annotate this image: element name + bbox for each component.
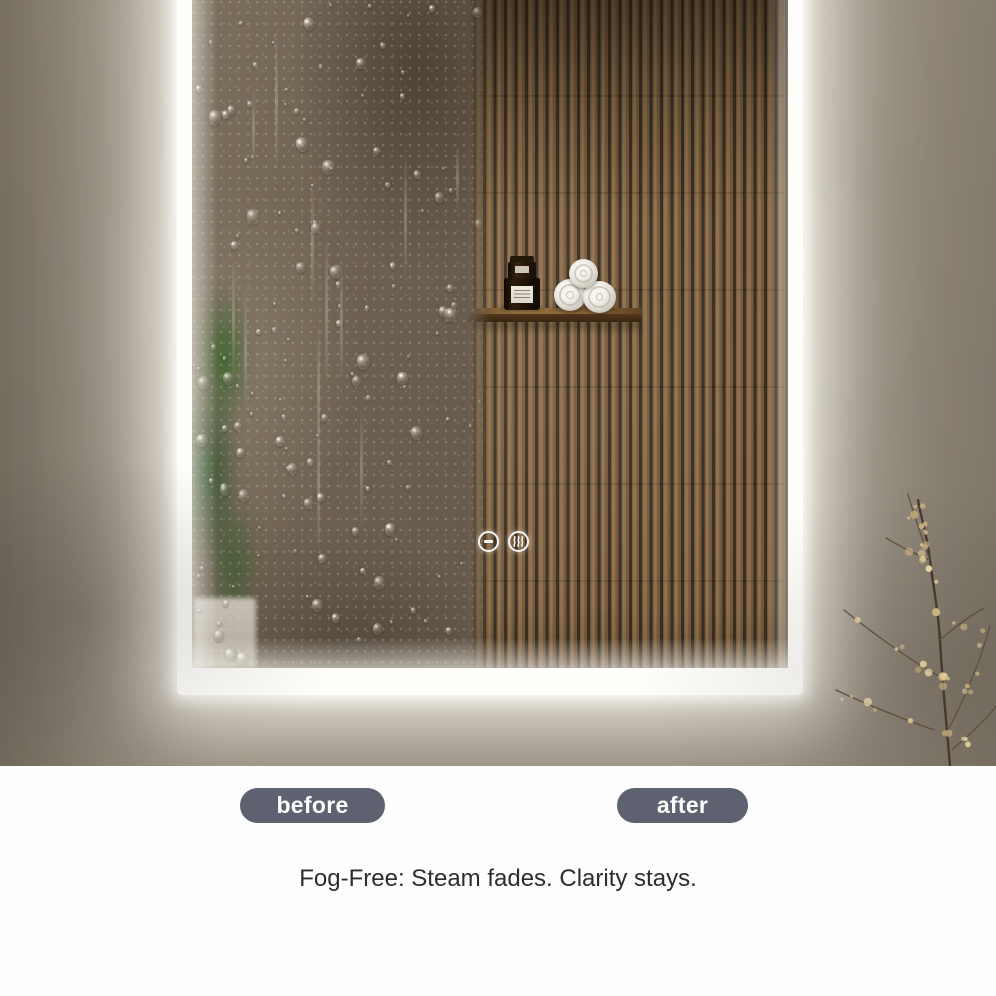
water-droplet xyxy=(228,105,237,116)
water-droplet xyxy=(295,136,310,153)
branch-berry xyxy=(914,505,917,508)
branch-berry xyxy=(926,565,933,572)
water-droplet xyxy=(373,147,381,157)
branch-berry xyxy=(908,718,913,723)
steam-icon xyxy=(512,535,525,548)
branch-berry xyxy=(920,661,927,668)
branch-berry xyxy=(905,548,913,556)
water-droplet xyxy=(307,458,314,467)
water-droplet xyxy=(195,85,202,93)
water-droplet xyxy=(410,425,424,441)
branch-berry xyxy=(977,643,982,648)
branch-berry xyxy=(932,608,940,616)
branch-berry xyxy=(907,517,910,520)
water-trail xyxy=(456,142,459,211)
water-droplet xyxy=(366,486,370,492)
water-trail xyxy=(244,287,247,412)
water-droplet xyxy=(283,359,286,363)
water-trail xyxy=(325,230,328,390)
water-droplet xyxy=(352,527,359,536)
branch-berry xyxy=(961,624,968,631)
water-trail xyxy=(317,405,320,560)
water-droplet xyxy=(273,302,277,306)
water-droplet xyxy=(250,155,253,159)
candle-upper-label xyxy=(515,266,529,273)
water-droplet xyxy=(446,627,452,635)
candle-label xyxy=(511,286,533,303)
caption-text: Fog-Free: Steam fades. Clarity stays. xyxy=(0,865,996,893)
dried-branch-decor xyxy=(818,468,996,766)
water-droplet xyxy=(329,3,333,8)
dimmer-button xyxy=(478,531,499,552)
branch-berry xyxy=(952,621,955,624)
water-droplet xyxy=(405,485,410,491)
branch-berry xyxy=(934,580,938,584)
branch-berry xyxy=(962,689,968,695)
water-droplet xyxy=(311,599,322,613)
defog-button xyxy=(508,531,529,552)
water-droplet xyxy=(420,208,423,212)
water-droplet xyxy=(434,192,444,204)
water-droplet xyxy=(356,354,371,371)
water-droplet xyxy=(395,538,398,541)
water-droplet xyxy=(449,188,453,193)
rolled-towel xyxy=(569,259,598,288)
water-droplet xyxy=(380,41,387,48)
branch-berry xyxy=(968,689,973,694)
bathroom-scene xyxy=(0,0,996,766)
branch-berry xyxy=(923,529,926,532)
water-droplet xyxy=(356,58,366,69)
water-droplet xyxy=(318,554,327,563)
branch-berry xyxy=(855,617,861,623)
branch-berry xyxy=(925,669,933,677)
water-droplet xyxy=(284,88,287,91)
led-mirror-frame xyxy=(177,0,803,695)
shelf-shadow xyxy=(468,322,642,334)
water-droplet xyxy=(447,284,456,293)
water-droplet xyxy=(446,416,450,420)
water-droplet xyxy=(410,607,416,615)
water-droplet xyxy=(390,261,397,270)
water-trail xyxy=(252,86,255,172)
dimmer-icon xyxy=(484,540,493,543)
water-trail xyxy=(232,255,235,384)
branch-berry xyxy=(922,544,928,550)
water-droplet xyxy=(384,523,396,537)
water-droplet xyxy=(310,222,321,234)
water-trail xyxy=(360,408,363,528)
water-droplet xyxy=(287,338,290,341)
water-droplet xyxy=(209,40,213,46)
water-droplet xyxy=(303,118,306,122)
branch-berry xyxy=(864,698,872,706)
branch-berry xyxy=(910,511,918,519)
water-droplet xyxy=(364,305,369,311)
water-droplet xyxy=(400,93,405,100)
branch-berry xyxy=(919,524,925,530)
water-droplet xyxy=(396,371,409,386)
water-droplet xyxy=(390,620,394,625)
water-droplet xyxy=(295,228,300,234)
water-droplet xyxy=(474,218,483,229)
water-droplet xyxy=(279,398,282,402)
fog-layer xyxy=(192,0,494,668)
water-droplet xyxy=(413,169,422,179)
water-droplet xyxy=(460,561,463,565)
water-droplet xyxy=(284,103,287,107)
water-droplet xyxy=(441,167,444,171)
water-droplet xyxy=(250,412,253,416)
branch-berry xyxy=(975,672,979,676)
water-droplet xyxy=(209,478,214,484)
water-droplet xyxy=(199,565,204,571)
water-droplet xyxy=(294,108,300,116)
water-droplet xyxy=(236,234,240,238)
after-badge: after xyxy=(617,788,748,823)
water-droplet xyxy=(306,595,309,598)
water-droplet xyxy=(253,62,258,68)
before-badge: before xyxy=(240,788,385,823)
wood-shelf-edge xyxy=(468,314,642,322)
water-droplet xyxy=(209,110,221,127)
water-droplet xyxy=(239,21,243,25)
water-droplet xyxy=(403,385,407,389)
branch-berry xyxy=(841,698,844,701)
water-droplet xyxy=(331,612,341,623)
branch-berry xyxy=(980,628,985,633)
water-droplet xyxy=(357,637,362,643)
branch-berry xyxy=(946,677,950,681)
water-droplet xyxy=(361,94,364,97)
branch-berry xyxy=(920,503,926,509)
branch-berry xyxy=(850,694,853,697)
before-badge-label: before xyxy=(276,792,348,819)
water-trail xyxy=(275,27,278,173)
branch-berry xyxy=(895,647,899,651)
branch-berry xyxy=(939,682,947,690)
water-droplet xyxy=(303,16,316,32)
water-droplet xyxy=(285,447,288,450)
candle-jar xyxy=(502,256,542,310)
water-droplet xyxy=(281,493,285,498)
water-droplet xyxy=(281,414,286,421)
water-droplet xyxy=(296,262,307,274)
water-droplet xyxy=(373,623,383,636)
mirror-glass xyxy=(192,0,788,668)
water-droplet xyxy=(351,375,361,386)
water-droplet xyxy=(244,157,249,163)
after-badge-label: after xyxy=(657,792,708,819)
water-droplet xyxy=(469,424,473,429)
water-trail xyxy=(404,152,407,283)
branch-berry xyxy=(873,708,877,712)
water-droplet xyxy=(278,210,282,214)
water-droplet xyxy=(385,182,391,189)
water-droplet xyxy=(429,5,436,13)
product-image: before after Fog-Free: Steam fades. Clar… xyxy=(0,0,996,996)
branch-berry xyxy=(900,644,905,649)
water-droplet xyxy=(276,436,285,447)
water-droplet xyxy=(230,241,237,250)
branch-berry xyxy=(965,741,971,747)
water-droplet xyxy=(318,64,323,70)
water-droplet xyxy=(368,4,372,9)
water-droplet xyxy=(321,159,335,175)
water-droplet xyxy=(365,394,370,400)
branch-berry xyxy=(915,667,921,673)
water-droplet xyxy=(387,460,393,466)
water-droplet xyxy=(407,14,410,18)
water-droplet xyxy=(293,549,297,554)
branch-berry xyxy=(963,737,967,741)
water-droplet xyxy=(197,609,200,612)
water-droplet xyxy=(392,284,396,289)
branch-berry xyxy=(920,556,926,562)
water-droplet xyxy=(359,567,366,574)
water-droplet xyxy=(321,413,329,422)
branch-berry xyxy=(965,684,970,689)
water-droplet xyxy=(303,498,313,510)
water-droplet xyxy=(401,70,406,75)
water-droplet xyxy=(424,619,428,624)
water-droplet xyxy=(373,576,385,591)
water-droplet xyxy=(473,7,484,19)
water-droplet xyxy=(438,575,441,579)
water-trail xyxy=(311,181,314,307)
water-droplet xyxy=(407,355,410,358)
caption-band: before after Fog-Free: Steam fades. Clar… xyxy=(0,766,996,996)
water-droplet xyxy=(247,209,260,225)
water-droplet xyxy=(478,399,481,402)
water-droplet xyxy=(316,493,324,502)
water-droplet xyxy=(316,434,319,437)
water-droplet xyxy=(258,526,261,530)
branch-berry xyxy=(942,730,948,736)
water-droplet xyxy=(436,332,439,335)
